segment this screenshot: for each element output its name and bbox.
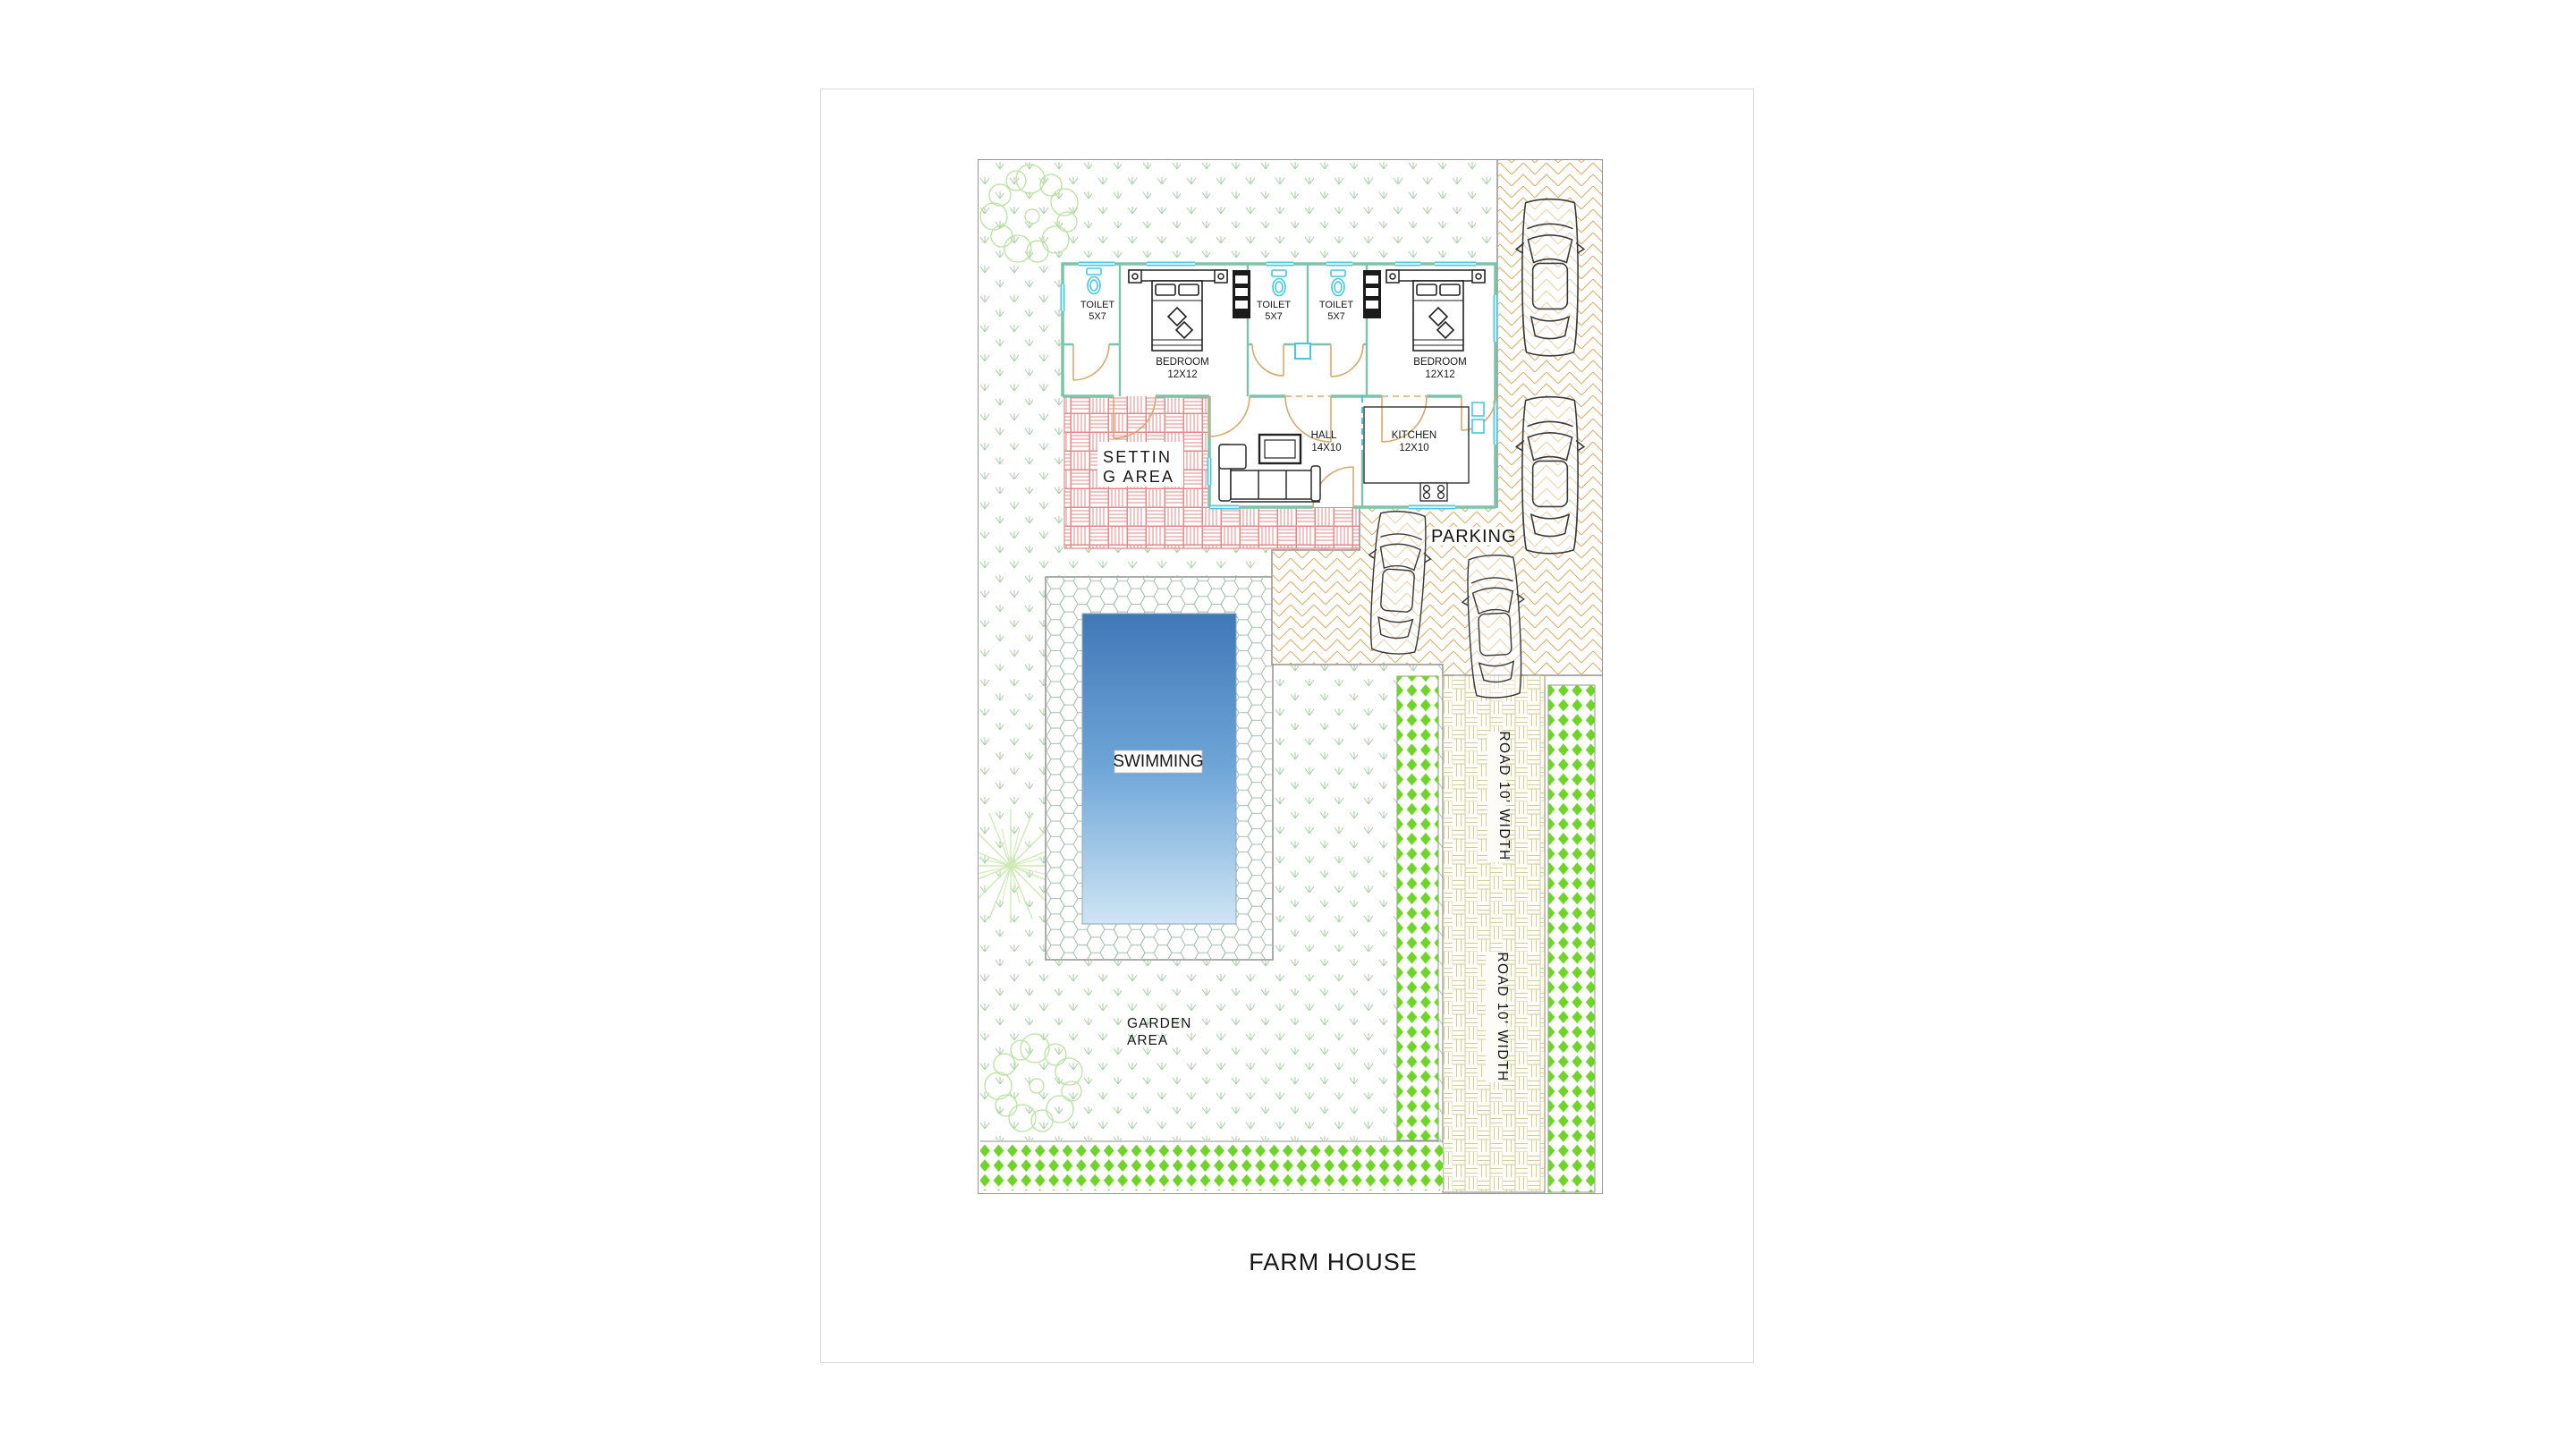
room-label: 5X7 xyxy=(1265,311,1283,322)
hedge-strip-left xyxy=(1397,676,1438,1140)
toilet-icon xyxy=(1331,270,1345,296)
room-label: KITCHEN xyxy=(1392,430,1436,441)
room-label: TOILET xyxy=(1080,300,1115,310)
room-label: HALL xyxy=(1311,430,1337,441)
canvas-background: TOILET 5X7 TOILET 5X7 TOILET 5X7 BEDROOM… xyxy=(0,0,2576,1449)
room-label: 12X12 xyxy=(1167,369,1197,380)
site-plan: TOILET 5X7 TOILET 5X7 TOILET 5X7 BEDROOM… xyxy=(978,159,1603,1194)
setting-area-label: SETTIN xyxy=(1103,448,1172,466)
tv-table-icon xyxy=(1259,435,1301,463)
room-label: 14X10 xyxy=(1311,443,1341,453)
room-label: 12X10 xyxy=(1399,443,1428,453)
room-label: 5X7 xyxy=(1327,311,1345,322)
parking-label: PARKING xyxy=(1431,527,1517,547)
room-label: TOILET xyxy=(1319,300,1354,310)
car-icon xyxy=(1516,397,1584,554)
hedge-strip-right xyxy=(1548,685,1595,1192)
setting-area-label: G AREA xyxy=(1103,468,1174,486)
garden-area-label: AREA xyxy=(1127,1033,1168,1048)
drawing-title: FARM HOUSE xyxy=(1021,1249,1646,1276)
entry-threshold xyxy=(1295,343,1310,359)
toilet-icon xyxy=(1087,268,1101,294)
room-label: BEDROOM xyxy=(1413,357,1466,368)
room-label: TOILET xyxy=(1257,300,1292,310)
road-width-label: ROAD 10' WIDTH xyxy=(1495,952,1510,1081)
garden-area-label: GARDEN xyxy=(1127,1016,1191,1031)
room-label: BEDROOM xyxy=(1156,357,1208,368)
car-icon xyxy=(1516,199,1584,356)
wardrobe-icon xyxy=(1233,270,1250,318)
road-width-label: ROAD 10' WIDTH xyxy=(1496,731,1512,860)
toilet-icon xyxy=(1272,270,1286,296)
hedge-strip-bottom xyxy=(980,1141,1443,1191)
swimming-pool-label: SWIMMING xyxy=(1113,752,1203,771)
room-label: 12X12 xyxy=(1425,369,1454,380)
wardrobe-icon xyxy=(1363,270,1381,318)
stove-icon xyxy=(1420,483,1447,501)
room-label: 5X7 xyxy=(1089,311,1106,322)
